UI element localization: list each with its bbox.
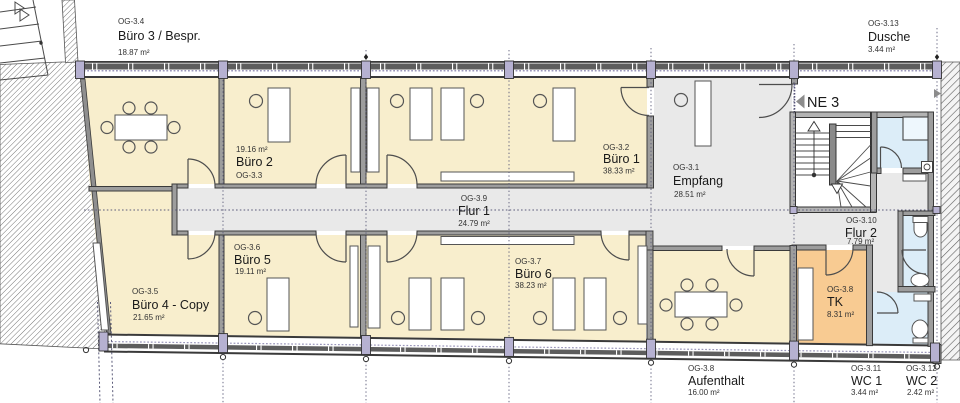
svg-text:18.87 m²: 18.87 m² <box>118 48 150 57</box>
svg-text:Flur 1: Flur 1 <box>458 204 490 218</box>
svg-text:16.00 m²: 16.00 m² <box>688 388 720 397</box>
svg-text:8.31 m²: 8.31 m² <box>827 310 854 319</box>
svg-text:TK: TK <box>827 295 844 309</box>
svg-text:3.44 m²: 3.44 m² <box>851 388 878 397</box>
svg-text:OG-3.12: OG-3.12 <box>906 364 937 373</box>
svg-text:38.23 m²: 38.23 m² <box>515 281 547 290</box>
svg-text:Büro 1: Büro 1 <box>603 152 640 166</box>
svg-text:Dusche: Dusche <box>868 30 910 44</box>
svg-text:24.79 m²: 24.79 m² <box>458 219 490 228</box>
svg-text:2.42 m²: 2.42 m² <box>907 388 934 397</box>
svg-text:38.33 m²: 38.33 m² <box>603 167 635 176</box>
svg-text:OG-3.6: OG-3.6 <box>234 243 261 252</box>
svg-text:OG-3.13: OG-3.13 <box>868 19 899 28</box>
svg-text:NE 3: NE 3 <box>807 95 839 111</box>
svg-text:Empfang: Empfang <box>673 174 723 188</box>
svg-text:Aufenthalt: Aufenthalt <box>688 374 745 388</box>
svg-text:WC 2: WC 2 <box>906 374 937 388</box>
svg-text:OG-3.8: OG-3.8 <box>827 285 854 294</box>
svg-text:Büro 5: Büro 5 <box>234 253 271 267</box>
svg-text:OG-3.10: OG-3.10 <box>846 216 877 225</box>
svg-text:21.65 m²: 21.65 m² <box>133 313 165 322</box>
svg-text:OG-3.7: OG-3.7 <box>515 257 542 266</box>
svg-text:28.51 m²: 28.51 m² <box>674 190 706 199</box>
svg-text:Büro 3 / Bespr.: Büro 3 / Bespr. <box>118 29 201 43</box>
svg-text:Büro 4 - Copy: Büro 4 - Copy <box>132 298 210 312</box>
svg-text:19.11 m²: 19.11 m² <box>235 267 266 276</box>
svg-text:OG-3.3: OG-3.3 <box>236 171 263 180</box>
svg-text:3.44 m²: 3.44 m² <box>868 45 895 54</box>
svg-text:OG-3.4: OG-3.4 <box>118 17 145 26</box>
svg-text:OG-3.9: OG-3.9 <box>461 194 488 203</box>
svg-text:OG-3.1: OG-3.1 <box>673 163 700 172</box>
svg-text:Büro 2: Büro 2 <box>236 155 273 169</box>
svg-text:WC 1: WC 1 <box>851 374 882 388</box>
svg-text:OG-3.11: OG-3.11 <box>851 364 882 373</box>
svg-text:7.79 m²: 7.79 m² <box>847 237 874 246</box>
svg-text:OG-3.5: OG-3.5 <box>132 287 159 296</box>
svg-text:19.16 m²: 19.16 m² <box>236 145 268 154</box>
svg-text:Büro 6: Büro 6 <box>515 267 552 281</box>
svg-text:OG-3.8: OG-3.8 <box>688 364 715 373</box>
svg-text:OG-3.2: OG-3.2 <box>603 143 630 152</box>
